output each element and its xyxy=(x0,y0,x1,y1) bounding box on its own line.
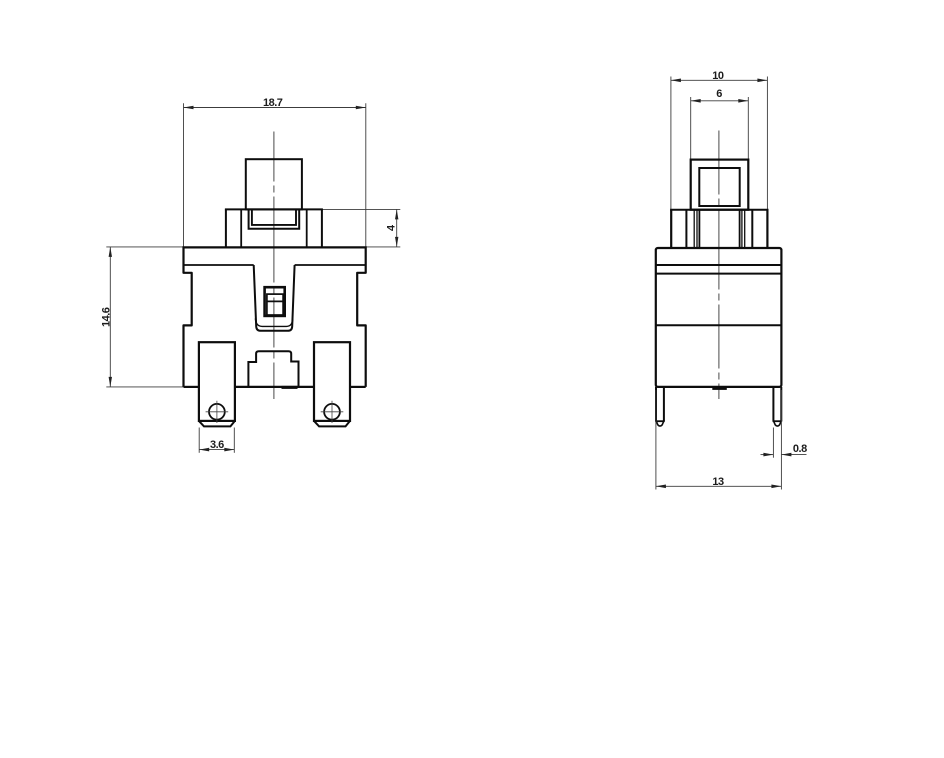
svg-text:14.6: 14.6 xyxy=(101,307,113,327)
svg-text:10: 10 xyxy=(712,70,724,82)
svg-text:18.7: 18.7 xyxy=(263,97,283,109)
svg-text:13: 13 xyxy=(712,476,724,488)
svg-text:6: 6 xyxy=(716,88,722,100)
svg-text:4: 4 xyxy=(385,224,397,231)
svg-text:0.8: 0.8 xyxy=(793,443,807,455)
svg-text:3.6: 3.6 xyxy=(210,439,224,451)
